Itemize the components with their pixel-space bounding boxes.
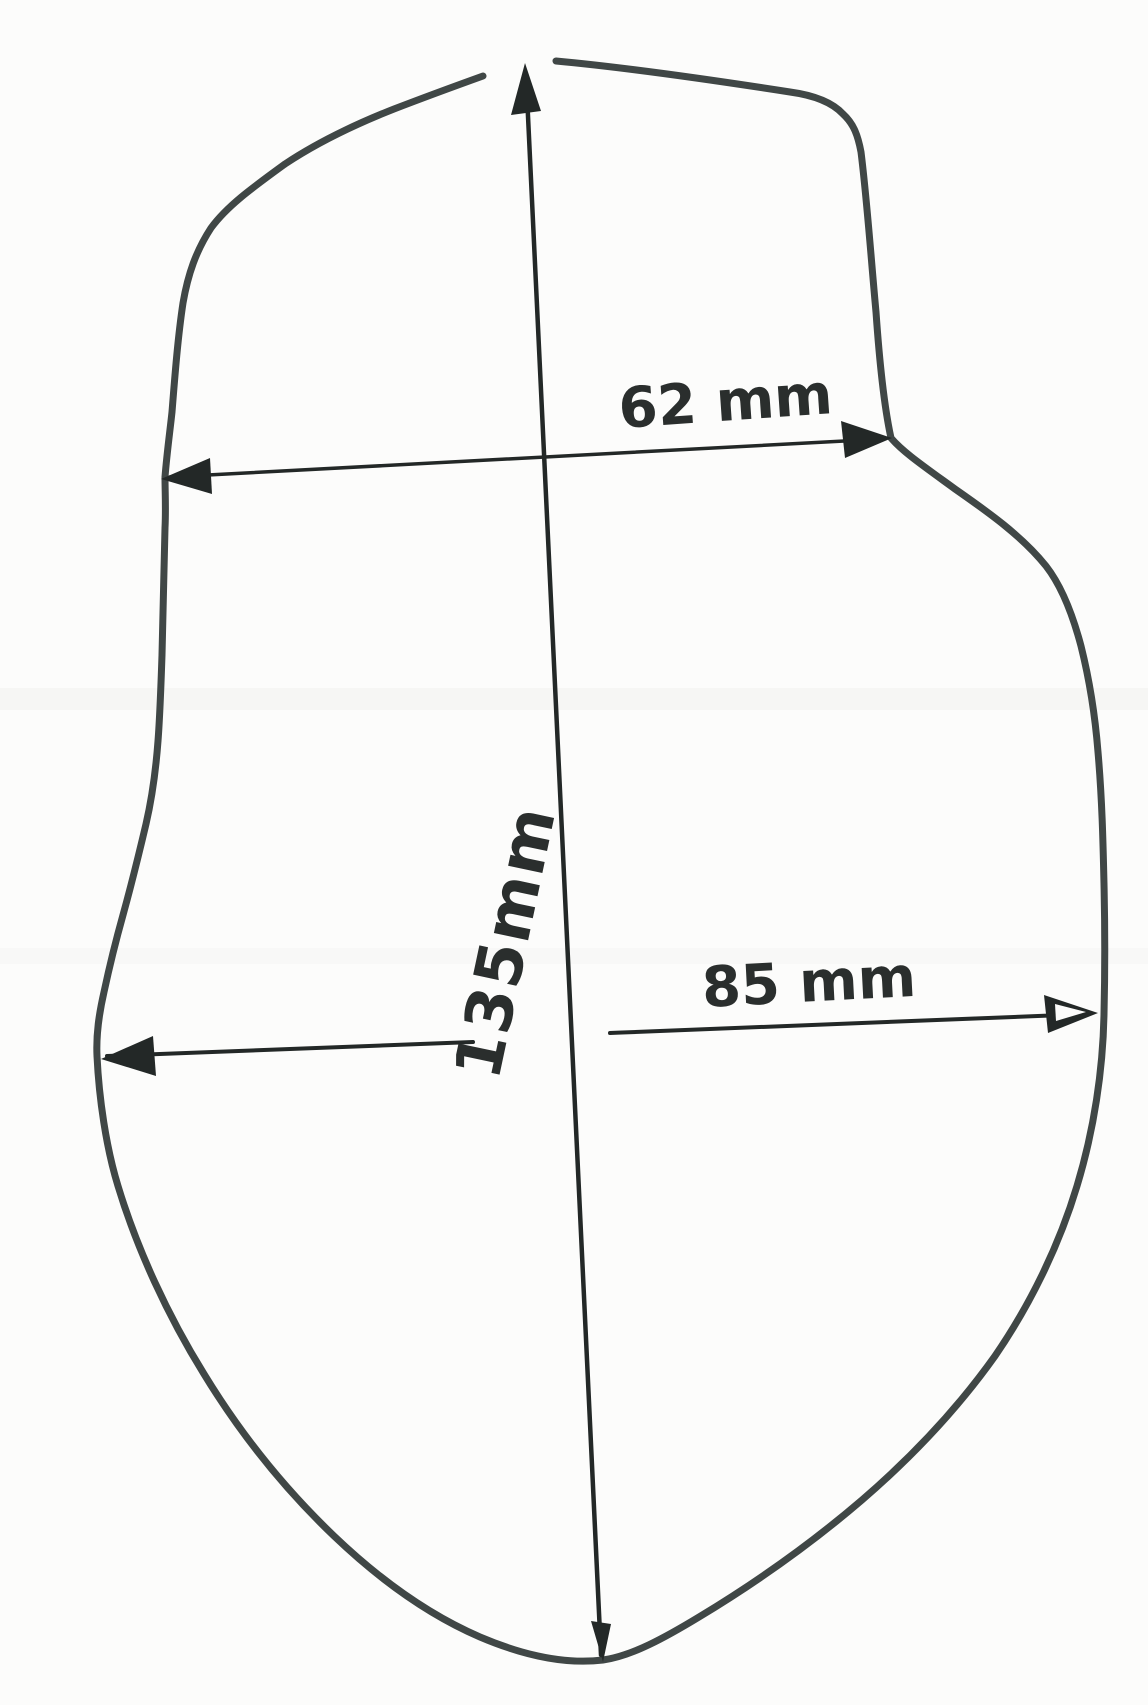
paper-background	[0, 0, 1148, 1705]
scan-artifact-band	[0, 688, 1148, 710]
sketch-svg: 135mm 62 mm 85 mm	[0, 0, 1148, 1705]
scanned-sketch-page: 135mm 62 mm 85 mm	[0, 0, 1148, 1705]
width-middle-label: 85 mm	[700, 945, 917, 1021]
scan-artifact-band	[0, 948, 1148, 964]
